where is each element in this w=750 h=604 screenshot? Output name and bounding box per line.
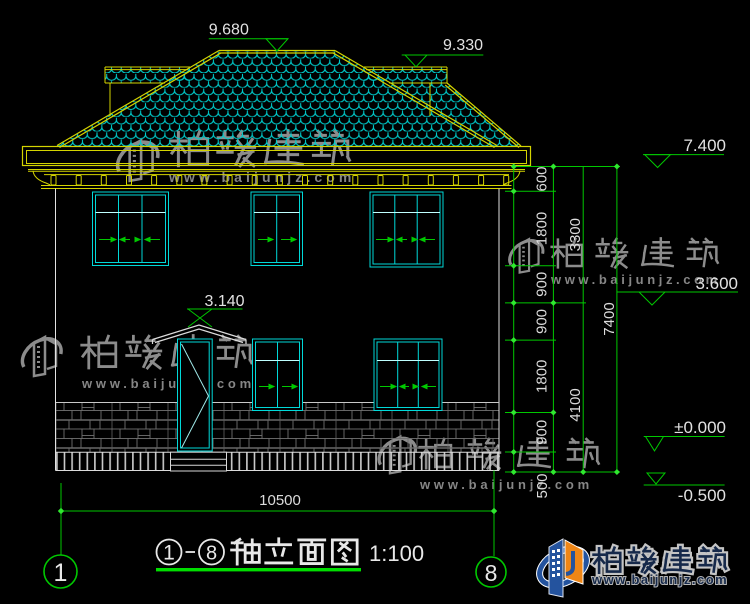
- svg-text:900: 900: [534, 309, 551, 334]
- svg-text:3.600: 3.600: [695, 274, 738, 293]
- svg-text:1800: 1800: [534, 360, 551, 393]
- svg-text:9.330: 9.330: [443, 37, 483, 54]
- svg-text:500: 500: [534, 473, 551, 498]
- svg-text:4100: 4100: [567, 388, 584, 421]
- svg-text:10500: 10500: [259, 492, 301, 509]
- svg-text:9.680: 9.680: [209, 21, 249, 38]
- svg-text:1800: 1800: [534, 212, 551, 245]
- svg-text:8: 8: [485, 560, 498, 586]
- svg-text:3.140: 3.140: [205, 293, 245, 310]
- svg-text:www.baijunjz.com: www.baijunjz.com: [81, 376, 255, 391]
- svg-text:-0.500: -0.500: [678, 486, 726, 505]
- svg-text:600: 600: [534, 166, 551, 191]
- svg-text:1: 1: [163, 542, 175, 565]
- svg-text:7.400: 7.400: [683, 136, 726, 155]
- svg-text:900: 900: [534, 272, 551, 297]
- svg-text:3300: 3300: [567, 218, 584, 251]
- svg-text:www.baijunjz.com: www.baijunjz.com: [419, 477, 593, 492]
- svg-text:8: 8: [206, 543, 217, 565]
- svg-text:1: 1: [54, 559, 68, 587]
- svg-text:900: 900: [534, 420, 551, 445]
- svg-text:±0.000: ±0.000: [674, 418, 726, 437]
- svg-text:1:100: 1:100: [369, 541, 424, 566]
- svg-text:www.baijunjz.com: www.baijunjz.com: [591, 572, 728, 587]
- svg-text:7400: 7400: [601, 302, 618, 335]
